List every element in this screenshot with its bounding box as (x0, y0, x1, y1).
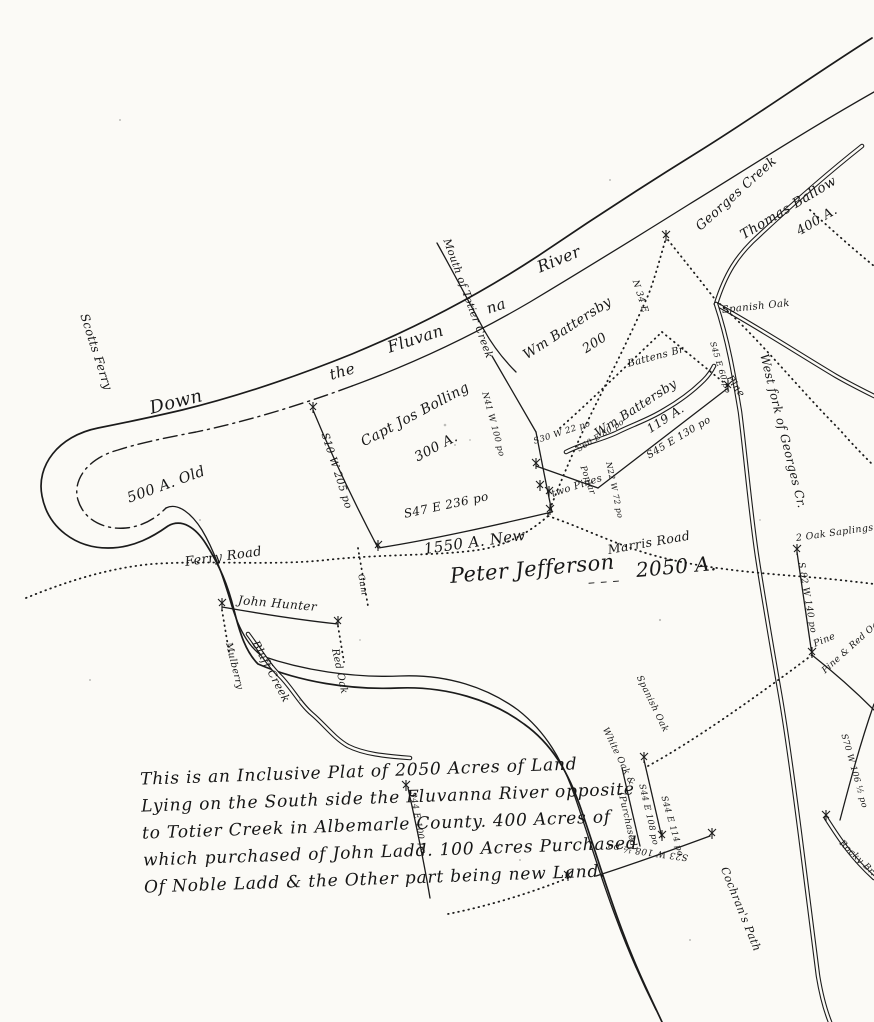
rocky-branch-label: Rocky Br. (837, 839, 874, 878)
river-word-river: River (535, 244, 583, 276)
bluff-creek-label: Bluff Creek (250, 639, 292, 704)
peter-jefferson-dashes: – – – (588, 574, 621, 590)
bearing-s44e108: S44 E 108 po (637, 783, 659, 846)
bearing-n22w72: N22 W 72 po (604, 461, 624, 519)
river-word-fluvan: Fluvan (386, 323, 446, 356)
new-1550-label: 1550 A. New (423, 528, 527, 557)
bolling-acres: 300 A. (413, 431, 460, 465)
john-hunter-label: John Hunter (237, 594, 317, 613)
bearing-s47e236: S47 E 236 po (403, 490, 490, 520)
cochrans-path-label: Cochran's Path (719, 865, 763, 952)
battens-branch-label: Battens Br. (627, 344, 688, 369)
bearing-s82w140: S 82 W 140 po (796, 562, 817, 634)
gum-label: Gum (356, 574, 368, 597)
old-500-label: 500 A. Old (126, 464, 208, 506)
river-word-the: the (328, 361, 357, 383)
battersby-200-acres: 200 (580, 331, 609, 356)
two-pines-label: two Pines (550, 474, 603, 500)
mulberry-label: Mulberry (223, 642, 244, 691)
bearing-s70w106: S70 W 106 ½ po (839, 733, 868, 809)
scotts-ferry-label: Scotts Ferry (78, 312, 114, 391)
west-fork-label: West fork of Georges Cr. (758, 353, 808, 510)
spanish-oak-2-label: Spanish Oak (634, 675, 669, 735)
bearing-n41w100: N41 W 100 po (480, 391, 505, 458)
red-oak-label: Red Oak (329, 648, 348, 695)
pine-red-oak-label: Pine & Red Oak (821, 617, 874, 676)
spanish-oak-label: Spanish Oak (721, 299, 790, 316)
bearing-s10w205: S10 W 205 po (319, 432, 353, 511)
oak-saplings-label: 2 Oak Saplings (795, 523, 874, 543)
acres-2050-label: 2050 A. (635, 553, 717, 580)
river-word-down: Down (148, 387, 205, 417)
ferry-road-label: Ferry Road (184, 545, 263, 569)
survey-note: This is an Inclusive Plat of 2050 Acres … (140, 749, 639, 901)
marris-road-label: Marris Road (607, 530, 691, 557)
survey-plat-map: DowntheFluvannaRiverScotts FerryMouth of… (0, 0, 874, 1022)
bearing-n34e: N 34 E (630, 279, 649, 314)
battersby-200-name: Wm Battersby (521, 295, 614, 362)
pine-mid-label: Pine (812, 632, 837, 649)
river-word-na: na (485, 296, 508, 316)
